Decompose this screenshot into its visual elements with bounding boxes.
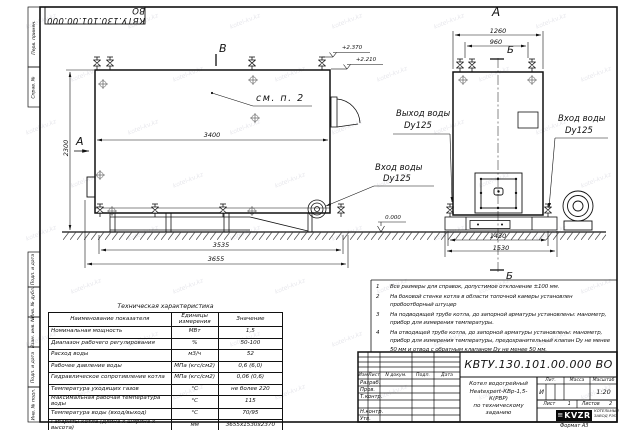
front-inlet-size: Dy125 [565, 126, 593, 136]
logo-stripes-icon: ≡ [557, 411, 563, 419]
table-row: Гидравлическое сопротивление котлаМПа (к… [49, 373, 283, 385]
tb-scale-value: 1:20 [590, 384, 617, 400]
tb-col-izm: Изм [358, 372, 368, 379]
table-row: Температура уходящих газов°Сне более 220 [49, 384, 283, 396]
tb-col-ndokum: N докум. [380, 372, 412, 379]
dim-1530: 1530 [493, 244, 510, 252]
view-a-marker-label: А [76, 135, 84, 148]
top-designation-stamp: КВТУ.130.101.00.000 ВО [45, 7, 145, 24]
spec-header-row: Наименование показателя Единицы измерени… [49, 313, 283, 327]
table-row: Номинальная мощностьМВт1,5 [49, 327, 283, 339]
table-row: Габариты котла (длина х ширина х высота)… [49, 420, 283, 430]
dim-2300: 2300 [62, 140, 70, 157]
table-row: Диапазон рабочего регулирования%50-100 [49, 338, 283, 350]
section-b-top-label: Б [507, 45, 514, 56]
front-inlet-label: Вход воды [558, 114, 605, 124]
tb-col-list: Лист [368, 372, 380, 379]
margin-label-inv-dubl: Инв. № дубл. [28, 287, 40, 317]
elevation-zero: 0.000 [385, 215, 401, 221]
nameplate [518, 112, 538, 128]
margin-label-sprav: Справ. № [28, 67, 40, 107]
elevation-2370: +2.370 [342, 45, 362, 51]
section-b-bottom-label: Б [506, 271, 513, 282]
margin-label-perv: Перв. примен. [28, 7, 40, 67]
boiler-side-view [87, 57, 360, 232]
notes-list: 1Все размеры для справок, допустимое отк… [376, 283, 612, 355]
tb-row-utv: Утв. [358, 415, 382, 422]
side-inlet-label: Вход воды [375, 163, 422, 173]
note-item: 2На боковой стенке котла в области топоч… [376, 293, 612, 310]
dim-3400: 3400 [204, 131, 221, 139]
note-item: 3На подводящей трубе котла, до запорной … [376, 311, 612, 328]
margin-label-inv-podl: Инв. № подл. [28, 387, 40, 422]
tb-lit-value: И [537, 384, 546, 400]
dim-1260: 1260 [490, 27, 507, 35]
inlet-flange [308, 200, 326, 218]
front-view-label: А [492, 5, 500, 19]
margin-label-podp1: Подп. и дата [28, 252, 40, 287]
title-block-document-name: Котел водогрейный Heatexpert-КВр-1,5-К(Р… [461, 379, 536, 420]
tb-row-razrab: Разраб. [358, 379, 382, 386]
dim-1430: 1430 [490, 232, 507, 240]
format-label: Формат А3 [560, 423, 588, 429]
tb-row-nkontr: Н.контр. [358, 408, 382, 415]
view-b-label: В [219, 42, 227, 55]
spec-table-title: Техническая характеристика [48, 303, 283, 310]
margin-label-podp2: Подп. и дата [28, 347, 40, 387]
tb-mass-header: Масса [564, 377, 590, 384]
tb-col-data: Дата [434, 372, 460, 379]
table-row: Расход водым3/ч52 [49, 350, 283, 362]
note-item: 4На отводящей трубе котла, до запорной а… [376, 329, 612, 355]
dim-960: 960 [490, 38, 502, 46]
tb-scale-header: Масштаб [590, 377, 617, 384]
outlet-size: Dy125 [404, 121, 432, 131]
tb-col-podp: Подп. [412, 372, 434, 379]
table-row: Температура воды (вход/выход)°С70/95 [49, 408, 283, 420]
side-inlet-size: Dy125 [383, 174, 411, 184]
note-item: 1Все размеры для справок, допустимое отк… [376, 283, 612, 292]
tb-lit-header: Лит. [537, 377, 564, 384]
see-note-callout: см. п. 2 [256, 93, 305, 104]
kvzr-logo: ≡ KVZR [556, 410, 592, 421]
title-block-designation: КВТУ.130.101.00.000 ВО [461, 353, 616, 376]
blower-fan [563, 191, 593, 230]
spec-table: Техническая характеристика Наименование … [48, 303, 283, 430]
furnace-door [475, 173, 522, 213]
outlet-label: Выход воды [396, 109, 450, 119]
company-name: КОТЕЛЬНЫЙ ЗАВОД РЭП [594, 409, 617, 419]
dim-3655: 3655 [208, 255, 225, 263]
tb-row-prov: Пров. [358, 386, 382, 393]
margin-label-vzam: Взам. инв. № [28, 317, 40, 347]
dim-3535: 3535 [213, 241, 230, 249]
tb-row-tkontr: Т.контр. [358, 393, 382, 400]
table-row: Рабочее давление водыМПа (кгс/см2)0,6 (6… [49, 361, 283, 373]
ground-line [62, 232, 606, 240]
tb-sheets-cell: Листов2 [577, 400, 617, 408]
drawing-sheet: kotel-kv.kzkotel-kv.kzkotel-kv.kzkotel-k… [0, 0, 644, 430]
table-row: Максимальная рабочая температура воды°С1… [49, 396, 283, 409]
elevation-2210: +2.210 [356, 57, 376, 63]
tb-sheet-cell: Лист1 [537, 400, 577, 408]
